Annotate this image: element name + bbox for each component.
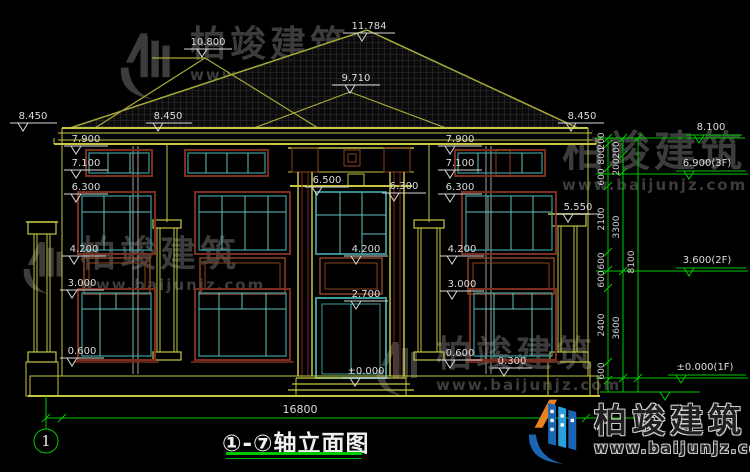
brand-logo: 柏竣建筑 www.baijunjz.com bbox=[524, 394, 750, 466]
pilaster-mid-left bbox=[153, 220, 181, 360]
marker-value: 0.300 bbox=[498, 356, 527, 367]
elevation-marker-right-5550: 5.550 bbox=[556, 202, 600, 222]
roof bbox=[60, 25, 585, 133]
dim-value: 600 bbox=[597, 270, 607, 287]
marker-value: 3.000 bbox=[68, 278, 97, 289]
marker-value: 2.700 bbox=[352, 289, 381, 300]
dim-value: 2100 bbox=[597, 207, 607, 230]
brand-logo-icon bbox=[524, 394, 588, 466]
window-1f-right bbox=[466, 289, 560, 362]
marker-value: 6.900(3F) bbox=[683, 158, 732, 169]
dim-value: 600 bbox=[597, 252, 607, 269]
window-1f-mid bbox=[191, 289, 294, 362]
window-2f-mid bbox=[195, 192, 290, 254]
porch-column-right bbox=[548, 214, 590, 396]
marker-value: 10.800 bbox=[191, 37, 226, 48]
marker-value: 7.100 bbox=[446, 158, 475, 169]
rosette bbox=[344, 150, 360, 166]
marker-value: 6.500 bbox=[313, 175, 342, 186]
elevation-marker-left-ridge: 10.800 bbox=[184, 37, 232, 57]
story-marker-8100: 8.100 bbox=[686, 122, 742, 143]
elevation-marker-eave-left: 8.450 bbox=[10, 111, 57, 131]
entrance-steps bbox=[284, 378, 418, 396]
capital-block-left bbox=[292, 148, 318, 172]
dim-value: 200 bbox=[597, 132, 607, 149]
axis-bubble-1: 1 bbox=[34, 396, 58, 453]
plinth bbox=[28, 376, 600, 396]
story-marker-1f: ±0.000(1F) bbox=[668, 362, 746, 383]
marker-value: 6.300 bbox=[446, 182, 475, 193]
story-level-lines bbox=[596, 138, 748, 400]
entrance-column-right bbox=[390, 172, 404, 376]
title-underline-thick bbox=[226, 452, 362, 455]
marker-value: ±0.000 bbox=[347, 366, 384, 377]
capital-block-right bbox=[384, 148, 410, 172]
entrance-column-left bbox=[298, 172, 312, 376]
dim-value: 600 bbox=[597, 168, 607, 185]
story-marker-3f: 6.900(3F) bbox=[676, 158, 746, 179]
marker-value: 6.300 bbox=[72, 182, 101, 193]
marker-value: 4.200 bbox=[448, 244, 477, 255]
cad-elevation-drawing: 柏竣建筑 www.baijunjz.com 柏竣建筑 www.baijunjz.… bbox=[0, 0, 750, 472]
marker-value: 8.450 bbox=[154, 111, 183, 122]
brand-logo-url: www.baijunjz.com bbox=[594, 439, 750, 457]
dim-value: 200 bbox=[612, 158, 622, 175]
marker-value: 0.600 bbox=[68, 346, 97, 357]
dim-value: 2400 bbox=[597, 313, 607, 336]
marker-value: 4.200 bbox=[352, 244, 381, 255]
marker-value: 8.450 bbox=[19, 111, 48, 122]
marker-value: 7.100 bbox=[72, 158, 101, 169]
porch-column-left bbox=[26, 222, 58, 396]
marker-value: 5.550 bbox=[564, 202, 593, 213]
marker-value: 7.900 bbox=[72, 134, 101, 145]
marker-value: 8.100 bbox=[697, 122, 726, 133]
total-width-value: 16800 bbox=[283, 403, 318, 416]
keystone bbox=[348, 174, 364, 186]
dim-value: 3300 bbox=[612, 215, 622, 238]
marker-value: 0.600 bbox=[446, 348, 475, 359]
dim-value: 200 bbox=[612, 141, 622, 158]
marker-value: 6.300 bbox=[390, 181, 419, 192]
dim-value: 800 bbox=[597, 147, 607, 164]
dim-value: 3600 bbox=[612, 316, 622, 339]
pilaster-mid-right bbox=[414, 220, 444, 360]
elevation-marker-right-0300: 0.300 bbox=[492, 356, 532, 376]
marker-value: ±0.000(1F) bbox=[677, 362, 734, 373]
elevation-marker-right-0600: 0.600 bbox=[438, 348, 482, 368]
dimension-chain-inner-labels: 200 800 600 2100 600 600 2400 600 bbox=[597, 132, 607, 379]
marker-value: 3.000 bbox=[448, 279, 477, 290]
dimension-chain-mid-labels: 200 200 3300 3600 bbox=[612, 141, 622, 339]
strip-window-mid bbox=[185, 150, 268, 176]
marker-value: 11.784 bbox=[352, 21, 387, 32]
cornice bbox=[54, 128, 596, 144]
marker-value: 4.200 bbox=[70, 244, 99, 255]
marker-value: 7.900 bbox=[446, 134, 475, 145]
elevation-marker-center-0000: ±0.000 bbox=[342, 366, 390, 386]
story-marker-2f: 3.600(2F) bbox=[676, 255, 746, 276]
dimension-chain-outer-labels: 8100 bbox=[627, 250, 637, 273]
dim-value: 8100 bbox=[627, 250, 637, 273]
marker-value: 9.710 bbox=[342, 73, 371, 84]
axis-number: 1 bbox=[41, 432, 51, 450]
brand-logo-text: 柏竣建筑 bbox=[594, 403, 750, 439]
title-underline-thin bbox=[226, 458, 362, 459]
marker-value: 8.450 bbox=[568, 111, 597, 122]
dim-value: 600 bbox=[597, 362, 607, 379]
marker-value: 3.600(2F) bbox=[683, 255, 732, 266]
